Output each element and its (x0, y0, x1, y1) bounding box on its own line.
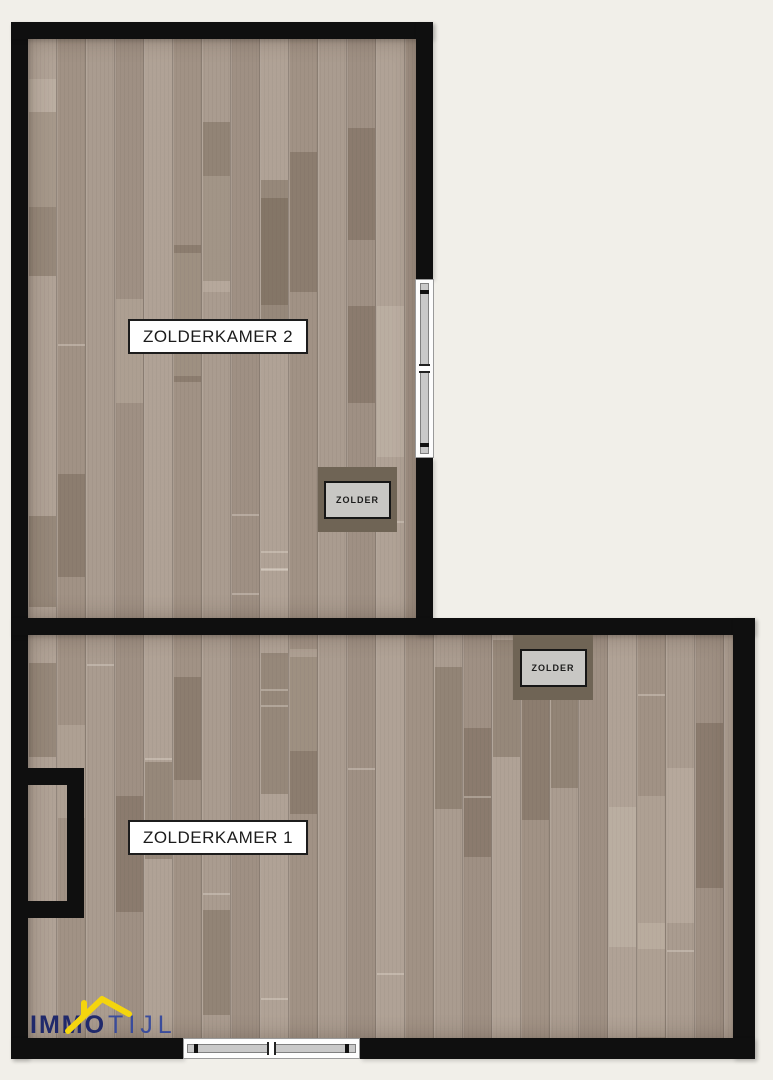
wall-bottom-right-segment (360, 1038, 755, 1059)
wall-room2-right-lower (416, 458, 433, 635)
room1-attic-hatch: ZOLDER (513, 635, 593, 700)
room1-attic-hatch-label: ZOLDER (520, 649, 587, 687)
room1-label-text: ZOLDERKAMER 1 (143, 828, 293, 848)
room2-attic-hatch-label: ZOLDER (324, 481, 391, 519)
wall-room2-right-upper (416, 22, 433, 279)
room2-window-cap-top (420, 290, 429, 294)
room2-window-divider (419, 364, 430, 373)
room1-label: ZOLDERKAMER 1 (128, 820, 308, 855)
room2-label: ZOLDERKAMER 2 (128, 319, 308, 354)
room2-attic-hatch: ZOLDER (318, 467, 397, 532)
floor-plan: ZOLDER ZOLDER ZOLDERKAMER 2 ZOLDERKAMER … (0, 0, 773, 1080)
wall-top (11, 22, 433, 39)
wall-room1-right (733, 618, 755, 1059)
room2-window (415, 279, 434, 458)
room1-window (183, 1038, 360, 1059)
wall-left (11, 22, 28, 1059)
room2-window-cap-bottom (420, 443, 429, 447)
wall-alcove-right (67, 768, 84, 918)
wall-alcove-bottom (28, 901, 84, 918)
room1-window-cap-right (345, 1044, 349, 1053)
immotijl-logo: IMMOTIJL (28, 990, 203, 1042)
room1-window-divider (267, 1042, 276, 1055)
house-roof-icon (28, 990, 203, 1042)
wall-middle-shared (11, 618, 755, 635)
room2-label-text: ZOLDERKAMER 2 (143, 327, 293, 347)
room1-window-cap-left (194, 1044, 198, 1053)
